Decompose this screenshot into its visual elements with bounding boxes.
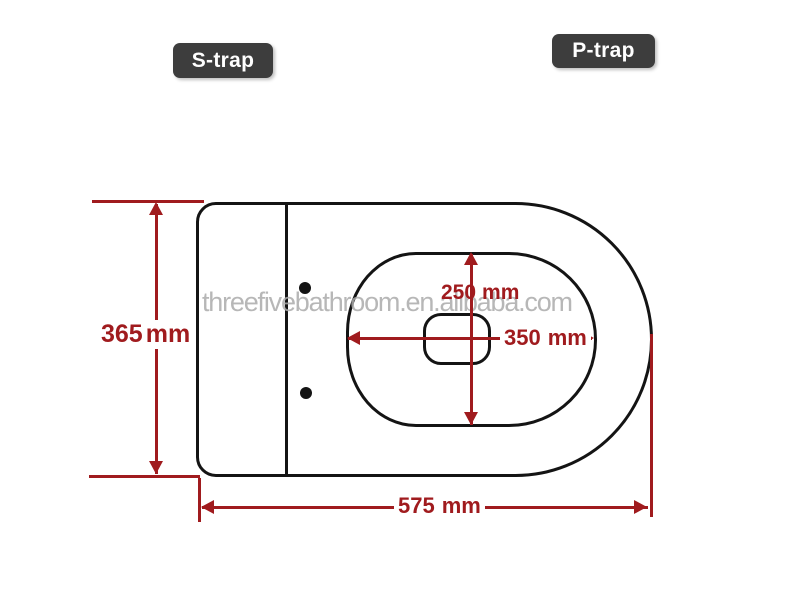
dim-350-unit: mm [548,325,587,351]
dim-575-label: 575 mm [394,493,485,519]
dim-575-arrow-right-icon [634,500,647,514]
dim-250-arrow-up-icon [464,252,478,265]
dim-365-unit: mm [146,320,190,349]
tank-seam-line [285,203,288,476]
product-dimension-diagram: S-trap P-trap threefivebathroom.en.aliba… [0,0,790,598]
dim-365-extension-top-line [92,200,204,203]
dim-365-value: 365 [101,320,143,349]
p-trap-badge: P-trap [552,34,655,68]
dim-350-value: 350 [504,325,541,351]
dim-250-label: 250 mm [441,281,519,305]
bolt-hole-bottom-dot [300,387,312,399]
dim-365-extension-bottom-line [89,475,200,478]
dim-575-unit: mm [442,493,481,519]
dim-365-label: 365 mm [97,320,194,349]
dim-250-value: 250 [441,281,476,305]
dim-575-extension-right-line [650,334,653,517]
dim-365-arrow-down-icon [149,461,163,474]
dim-365-arrow-up-icon [149,202,163,215]
dim-575-arrow-left-icon [201,500,214,514]
s-trap-badge: S-trap [173,43,273,78]
dim-250-arrow-down-icon [464,412,478,425]
dim-350-label: 350 mm [500,325,591,351]
dim-575-value: 575 [398,493,435,519]
dim-350-arrow-left-icon [347,331,360,345]
dim-250-unit: mm [482,281,519,305]
